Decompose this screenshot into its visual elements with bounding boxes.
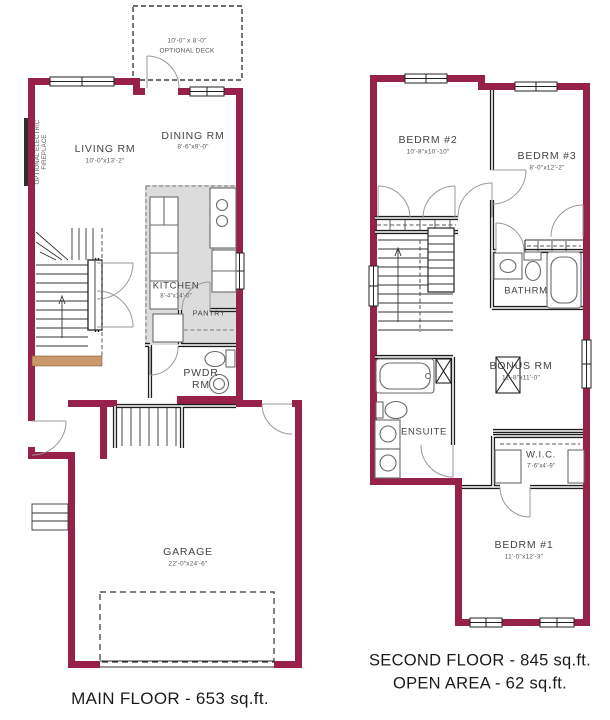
fireplace-unit — [24, 118, 28, 186]
stair-landing — [32, 356, 102, 366]
dining-room-dims: 8'-6"x9'-0" — [177, 143, 208, 150]
bedroom3-label: BEDRM #3 — [518, 150, 577, 162]
kitchen-dims: 8'-4"x14'-0" — [160, 294, 191, 301]
dining-room-label: DINING RM — [161, 130, 224, 142]
open-area-caption: OPEN AREA - 62 sq.ft. — [393, 675, 567, 694]
deck-dims-label: 10'-0" x 8'-0" — [167, 37, 206, 44]
second-staircase — [378, 228, 454, 330]
main-staircase — [36, 228, 102, 346]
wic-label: W.I.C. — [526, 451, 556, 462]
entry-steps — [122, 408, 176, 446]
wic-dims: 7'-6"x4'-9" — [527, 464, 555, 471]
bedroom1-dims: 11'-0"x12'-3" — [505, 553, 543, 560]
front-steps — [32, 504, 68, 530]
garage-dims: 22'-0"x24'-6" — [169, 560, 208, 567]
second-floor-caption: SECOND FLOOR - 845 sq.ft. — [369, 652, 591, 671]
powder-room-label: PWDR RM — [177, 367, 225, 391]
deck-label: OPTIONAL DECK — [159, 47, 214, 54]
bonus-room-label: BONUS RM — [490, 360, 553, 372]
kitchen-label: KITCHEN — [153, 282, 200, 293]
main-floor-walls — [28, 78, 302, 668]
living-room-label: LIVING RM — [75, 143, 136, 155]
bedroom3-dims: 8'-0"x12'-2" — [529, 164, 564, 171]
bonus-room-dims: 11'-8"x11'-0" — [502, 374, 540, 381]
bedroom1-label: BEDRM #1 — [495, 539, 554, 551]
bedroom2-label: BEDRM #2 — [399, 134, 458, 146]
bedroom2-dims: 10'-8"x10'-10" — [407, 148, 450, 155]
main-floor-caption: MAIN FLOOR - 653 sq.ft. — [71, 689, 269, 709]
main-floor-plan — [24, 6, 302, 669]
fireplace-note-label: OPTIONAL ELECTRIC FIREPLACE — [35, 110, 49, 194]
garage-label: GARAGE — [163, 546, 213, 558]
ensuite-fixtures — [375, 359, 451, 478]
bathroom-label: BATHRM — [504, 287, 548, 298]
garage-door-panel — [100, 592, 274, 662]
pantry-label: PANTRY — [193, 310, 226, 319]
ensuite-label: ENSUITE — [401, 428, 447, 439]
floor-plan-canvas: 10'-0" x 8'-0" OPTIONAL DECK OPTIONAL EL… — [0, 0, 610, 720]
bathroom-fixtures — [494, 252, 581, 308]
living-room-dims: 10'-0"x13'-2" — [86, 157, 125, 164]
